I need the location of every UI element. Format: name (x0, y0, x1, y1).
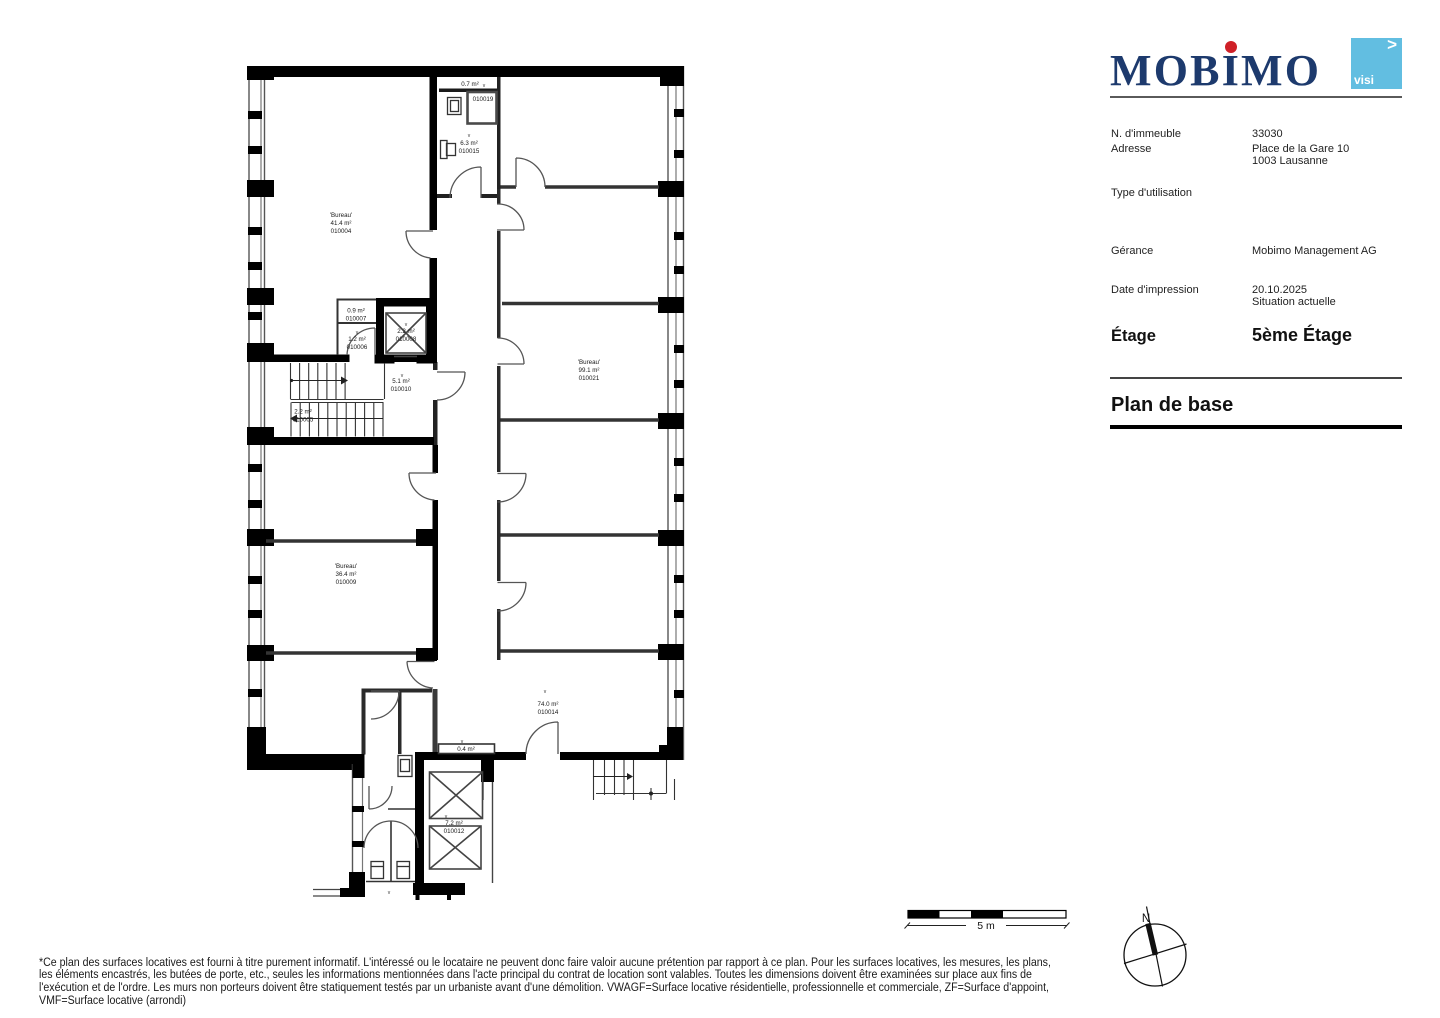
svg-text:010005: 010005 (293, 417, 314, 424)
svg-text:N: N (1142, 913, 1150, 925)
svg-text:0.9 m²: 0.9 m² (347, 308, 365, 315)
svg-text:v: v (468, 133, 471, 139)
svg-text:2.2 m²: 2.2 m² (397, 328, 415, 335)
svg-text:010009: 010009 (336, 579, 357, 586)
svg-text:1.2 m²: 1.2 m² (348, 336, 366, 343)
svg-text:010008: 010008 (396, 336, 417, 343)
svg-text:99.1 m²: 99.1 m² (579, 367, 600, 374)
svg-text:'Bureau': 'Bureau' (578, 359, 600, 366)
svg-text:010019: 010019 (473, 96, 494, 103)
svg-text:5 m: 5 m (977, 920, 995, 932)
svg-text:74.0 m²: 74.0 m² (538, 701, 559, 708)
svg-text:0.7 m²: 0.7 m² (461, 81, 479, 88)
svg-text:41.4 m²: 41.4 m² (331, 220, 352, 227)
svg-text:6.3 m²: 6.3 m² (460, 140, 478, 147)
svg-text:36.4 m²: 36.4 m² (336, 571, 357, 578)
svg-text:010015: 010015 (459, 148, 480, 155)
svg-text:010006: 010006 (347, 344, 368, 351)
svg-text:7.2 m²: 7.2 m² (445, 820, 463, 827)
svg-text:'Bureau': 'Bureau' (330, 212, 352, 219)
svg-text:0.4 m²: 0.4 m² (457, 746, 475, 753)
svg-text:010004: 010004 (331, 228, 352, 235)
svg-text:010021: 010021 (579, 375, 600, 382)
svg-text:v: v (388, 890, 391, 896)
svg-text:5.1 m²: 5.1 m² (392, 378, 410, 385)
svg-text:010010: 010010 (391, 386, 412, 393)
svg-text:v: v (483, 83, 486, 89)
svg-text:010012: 010012 (444, 828, 465, 835)
svg-text:'Bureau': 'Bureau' (335, 563, 357, 570)
svg-text:010007: 010007 (346, 316, 367, 323)
svg-text:2.2 m²: 2.2 m² (294, 409, 312, 416)
svg-text:v: v (544, 689, 547, 695)
svg-text:010014: 010014 (538, 709, 559, 716)
